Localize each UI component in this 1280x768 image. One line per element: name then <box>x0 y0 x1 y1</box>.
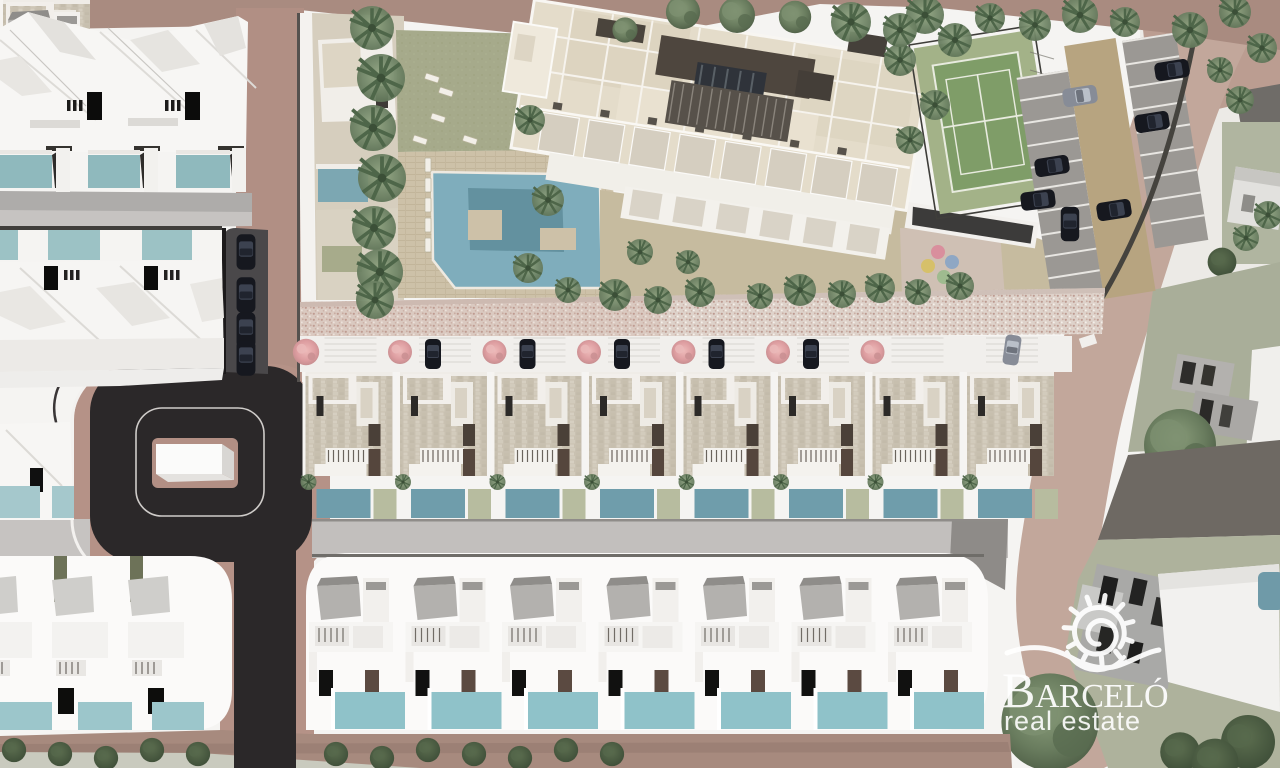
svg-text:real estate: real estate <box>1004 706 1141 736</box>
